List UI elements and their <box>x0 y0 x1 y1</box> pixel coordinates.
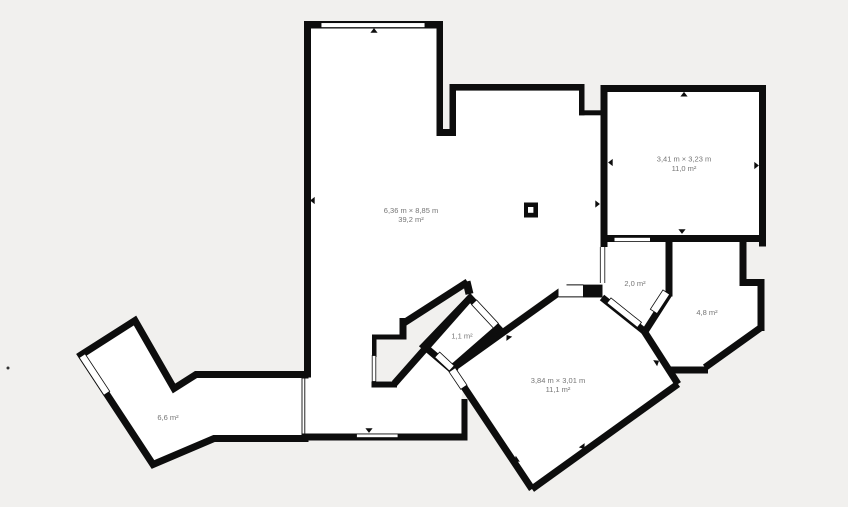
svg-text:3,41 m × 3,23 m: 3,41 m × 3,23 m <box>657 155 711 164</box>
svg-text:6,36 m × 8,85 m: 6,36 m × 8,85 m <box>384 206 438 215</box>
svg-text:4,8 m²: 4,8 m² <box>696 308 718 317</box>
svg-text:1,1 m²: 1,1 m² <box>451 332 473 341</box>
svg-text:2,0 m²: 2,0 m² <box>624 279 646 288</box>
svg-text:39,2 m²: 39,2 m² <box>398 215 424 224</box>
svg-text:6,6 m²: 6,6 m² <box>157 413 179 422</box>
svg-text:11,1 m²: 11,1 m² <box>546 385 571 394</box>
svg-text:11,0 m²: 11,0 m² <box>672 164 697 173</box>
svg-text:3,84 m × 3,01 m: 3,84 m × 3,01 m <box>531 376 585 385</box>
